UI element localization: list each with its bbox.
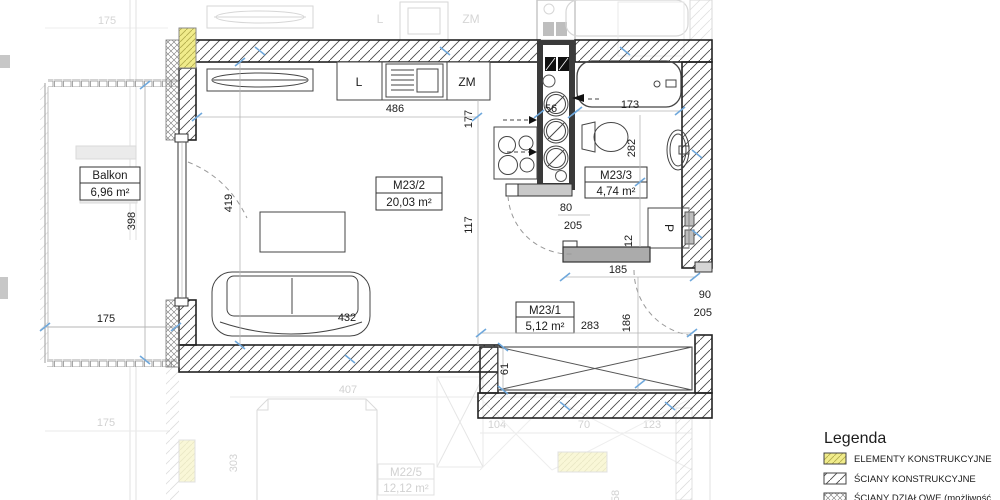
dim-61: 61 [499, 363, 511, 375]
legend-swatch-partition-walls [824, 493, 846, 500]
sofa [212, 272, 370, 336]
dishwasher-label-adjacent: ZM [462, 12, 479, 26]
dim-205-entry: 205 [694, 307, 712, 319]
floor-plan-page: 175 L ZM 407 303 M22/5 12,12 m² [0, 0, 1000, 500]
partition-wall [563, 241, 650, 262]
wall-top-right [575, 40, 712, 62]
balcony-door-swing-arc [188, 162, 247, 218]
room-area-m23-1: 5,12 m² [526, 321, 565, 333]
adjacent-unit-left [0, 55, 137, 360]
dim-lower-58: 58 [610, 490, 622, 500]
dim-lower-175: 175 [97, 417, 115, 429]
dim-lower-123: 123 [643, 419, 661, 431]
washing-machine-label: P [662, 224, 676, 232]
wall-bottom [179, 345, 500, 372]
room-area-m23-3: 4,74 m² [597, 186, 636, 198]
hallway: M23/1 5,12 m² [498, 302, 692, 390]
legend-label-structural-walls: ŚCIANY KONSTRUKCYJNE [854, 473, 976, 485]
kitchen [207, 62, 537, 179]
dim-56: 56 [545, 103, 557, 115]
room-name-m22-5: M22/5 [390, 467, 422, 479]
fridge-label: L [356, 75, 363, 89]
wall-entry-side [695, 335, 712, 393]
room-name-balkon: Balkon [92, 170, 127, 182]
wall-bottom-entry [478, 393, 712, 418]
floor-plan-drawing: 175 L ZM 407 303 M22/5 12,12 m² [0, 0, 1000, 500]
dimension-lines [145, 62, 695, 393]
room-area-balkon: 6,96 m² [91, 187, 130, 199]
dishwasher-label: ZM [458, 75, 475, 89]
table [260, 212, 345, 252]
dim-balcony-175: 175 [97, 313, 115, 325]
balcony-window [175, 134, 247, 306]
legend-label-structural-elements: ELEMENTY KONSTRUKCYJNE [854, 454, 992, 465]
dim-205-bath: 205 [564, 220, 582, 232]
dim-177: 177 [463, 110, 475, 128]
washbasin [667, 130, 689, 170]
room-area-m22-5: 12,12 m² [383, 483, 429, 495]
dim-185: 185 [609, 264, 627, 276]
partition-column-bottom [166, 300, 179, 367]
wall-left-upper [179, 68, 196, 140]
fridge-label-adjacent: L [377, 12, 384, 26]
dim-173: 173 [621, 99, 639, 111]
dim-283: 283 [581, 320, 599, 332]
dim-balcony-398: 398 [126, 212, 138, 230]
partition-column-top [166, 40, 179, 140]
wall-left-lower [179, 300, 196, 345]
dim-486: 486 [386, 103, 404, 115]
dim-419: 419 [223, 194, 235, 212]
wall-top [195, 40, 540, 62]
balcony-railing-bottom [47, 359, 177, 367]
legend: Legenda ELEMENTY KONSTRUKCYJNE ŚCIANY KO… [824, 430, 992, 500]
legend-title: Legenda [824, 430, 886, 447]
legend-label-partition-walls: ŚCIANY DZIAŁOWE (możliwość [854, 492, 991, 500]
room-area-m23-2: 20,03 m² [386, 197, 432, 209]
balcony: Balkon 6,96 m² 398 175 [45, 79, 177, 367]
dim-lower-70: 70 [578, 419, 590, 431]
dim-80: 80 [560, 202, 572, 214]
installation-shaft [537, 40, 575, 190]
bathroom-door [506, 184, 572, 254]
dim-186: 186 [621, 314, 633, 332]
dim-282: 282 [626, 139, 638, 157]
dim-lower-407: 407 [339, 384, 357, 396]
room-name-m23-2: M23/2 [393, 180, 425, 192]
dim-12: 12 [623, 235, 635, 247]
dim-90: 90 [699, 289, 711, 301]
vent-arrow-icon [503, 116, 537, 156]
legend-swatch-structural-walls [824, 473, 846, 484]
balcony-railing-top [48, 79, 177, 87]
toilet [582, 122, 628, 152]
structural-element-yellow [179, 28, 196, 68]
legend-swatch-structural-elements [824, 453, 846, 464]
dim-117: 117 [463, 216, 475, 234]
dim-432: 432 [338, 312, 356, 324]
room-name-m23-1: M23/1 [529, 305, 561, 317]
room-name-m23-3: M23/3 [600, 170, 632, 182]
dim-lower-303: 303 [228, 454, 240, 472]
dim-adjacent-175: 175 [98, 15, 116, 27]
